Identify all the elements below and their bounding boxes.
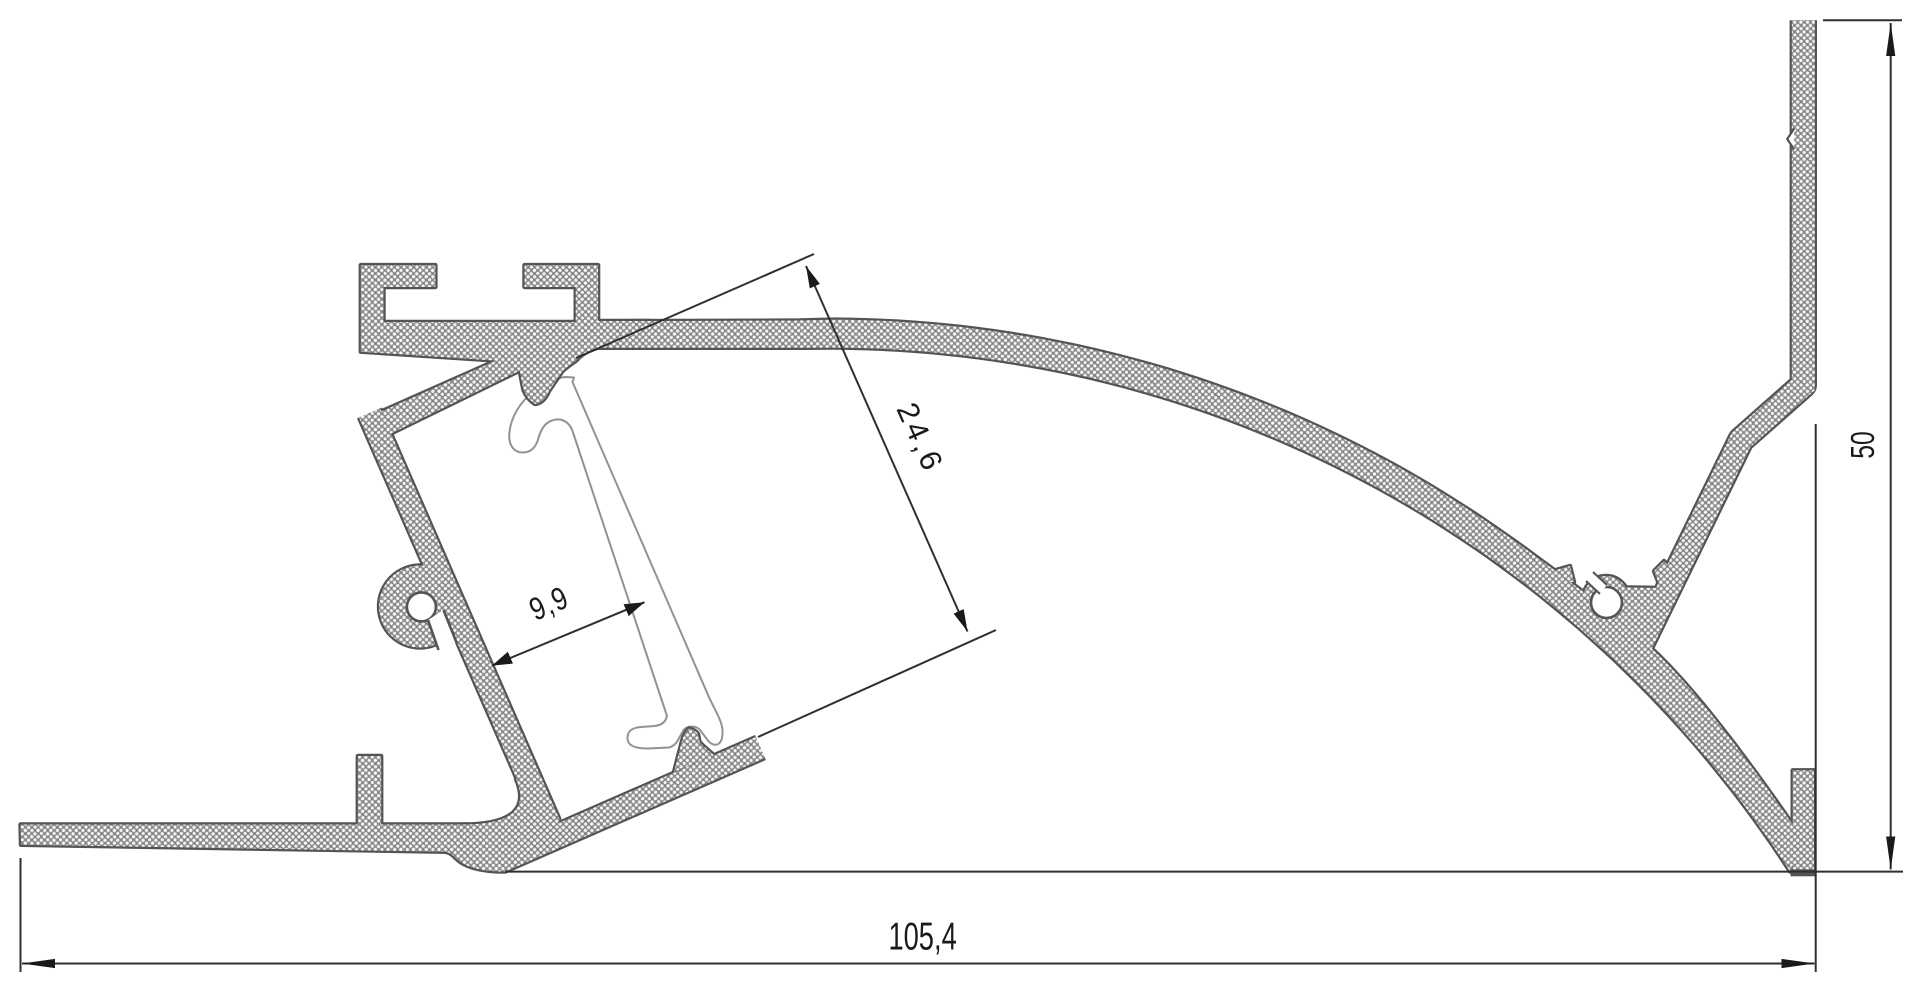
svg-text:105,4: 105,4	[888, 916, 956, 959]
svg-text:50: 50	[1846, 431, 1882, 459]
